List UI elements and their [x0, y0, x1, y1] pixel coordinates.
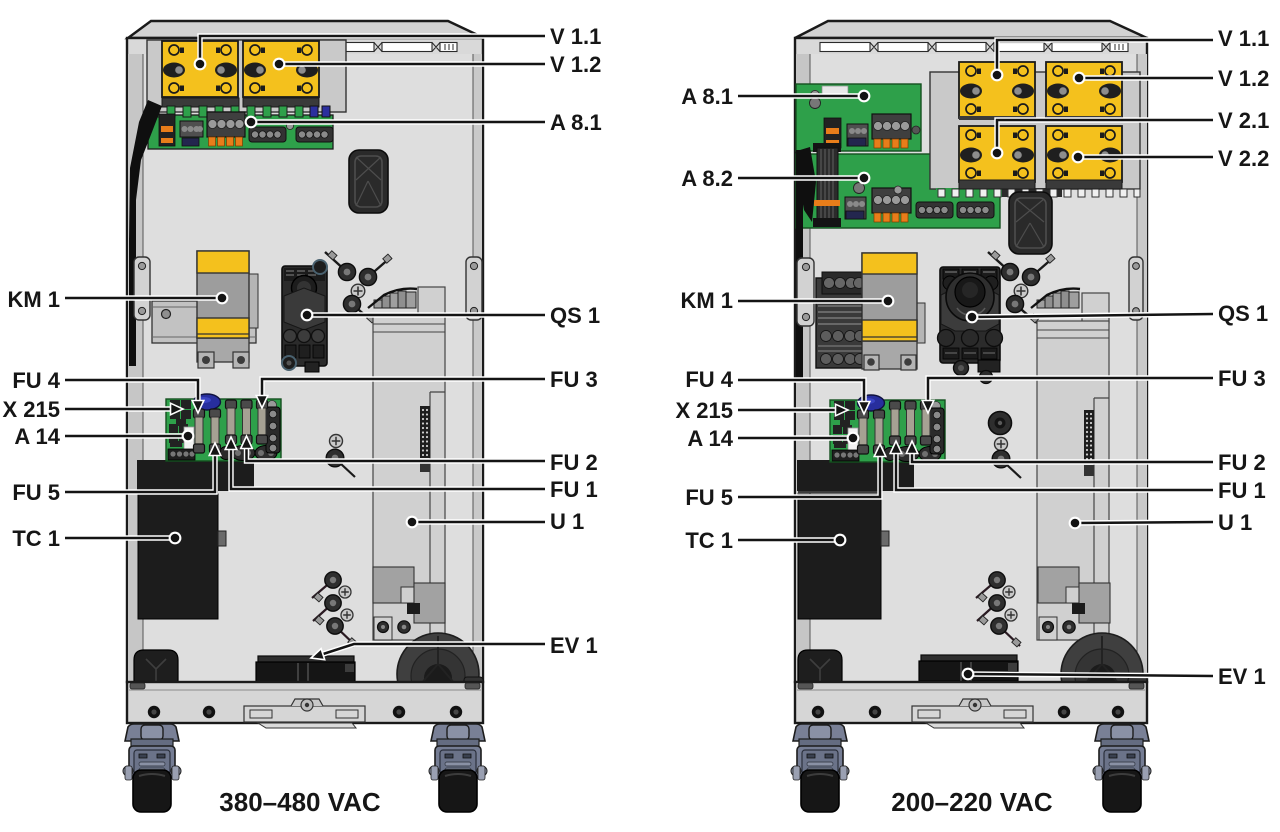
svg-text:FU 5: FU 5: [685, 485, 733, 510]
svg-text:EV 1: EV 1: [550, 633, 598, 658]
svg-text:FU 1: FU 1: [550, 477, 598, 502]
svg-text:FU 3: FU 3: [550, 367, 598, 392]
svg-text:X 215: X 215: [676, 398, 734, 423]
svg-text:FU 2: FU 2: [550, 450, 598, 475]
svg-text:TC 1: TC 1: [12, 526, 60, 551]
svg-text:FU 5: FU 5: [12, 480, 60, 505]
svg-text:FU 3: FU 3: [1218, 366, 1266, 391]
svg-text:EV 1: EV 1: [1218, 664, 1266, 689]
svg-text:V 1.2: V 1.2: [550, 52, 601, 77]
svg-text:A 14: A 14: [14, 424, 60, 449]
svg-text:U 1: U 1: [550, 509, 584, 534]
svg-text:200–220 VAC: 200–220 VAC: [891, 787, 1053, 817]
svg-text:KM 1: KM 1: [680, 288, 733, 313]
svg-text:A 8.2: A 8.2: [681, 166, 733, 191]
svg-text:QS 1: QS 1: [1218, 301, 1268, 326]
svg-text:FU 4: FU 4: [12, 368, 60, 393]
svg-text:A 8.1: A 8.1: [681, 84, 733, 109]
svg-text:TC 1: TC 1: [685, 528, 733, 553]
svg-text:X 215: X 215: [3, 397, 61, 422]
svg-text:V 2.1: V 2.1: [1218, 108, 1269, 133]
svg-text:V 2.2: V 2.2: [1218, 146, 1269, 171]
svg-text:FU 4: FU 4: [685, 367, 733, 392]
svg-text:A 14: A 14: [687, 426, 733, 451]
svg-text:A 8.1: A 8.1: [550, 110, 602, 135]
svg-text:U 1: U 1: [1218, 510, 1252, 535]
svg-text:KM 1: KM 1: [7, 287, 60, 312]
svg-text:V 1.2: V 1.2: [1218, 66, 1269, 91]
svg-text:FU 2: FU 2: [1218, 450, 1266, 475]
svg-text:V 1.1: V 1.1: [1218, 26, 1269, 51]
svg-text:QS 1: QS 1: [550, 303, 600, 328]
svg-text:V 1.1: V 1.1: [550, 24, 601, 49]
svg-text:380–480 VAC: 380–480 VAC: [219, 787, 381, 817]
svg-text:FU 1: FU 1: [1218, 478, 1266, 503]
